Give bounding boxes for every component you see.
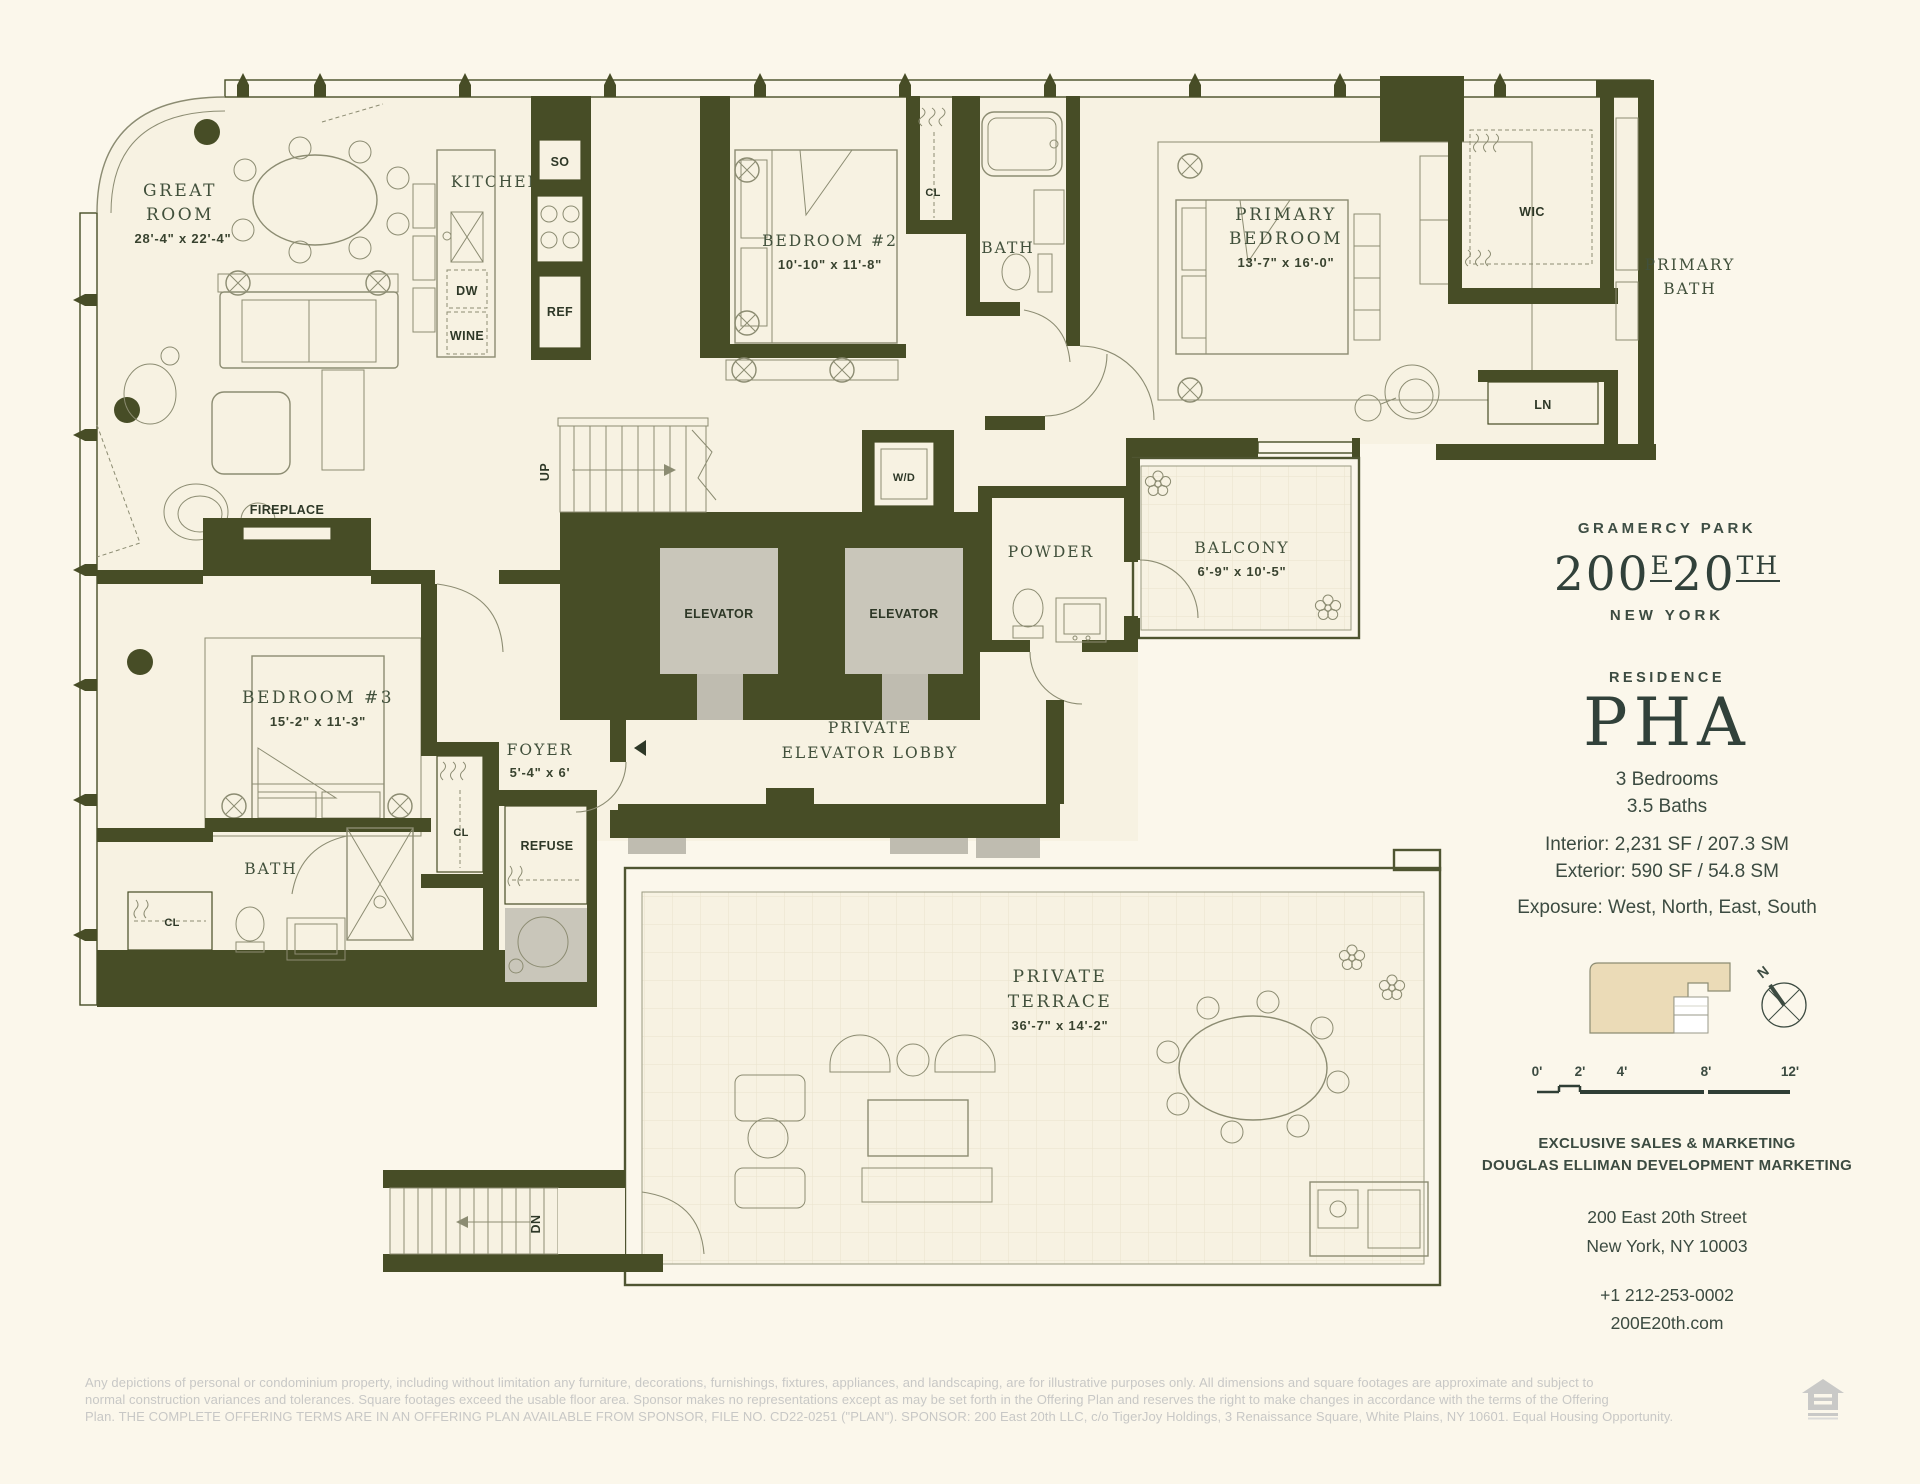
baths-count: 3.5 Baths	[1452, 794, 1882, 821]
logo-20: 20	[1672, 547, 1736, 602]
so-label: SO	[551, 155, 570, 169]
logo-e: E	[1650, 552, 1672, 582]
cl-label-1: CL	[925, 187, 940, 199]
balcony-dims: 6'-9" x 10'-5"	[1198, 564, 1287, 579]
powder-label: POWDER	[1008, 543, 1094, 561]
compass-north-label: N	[1754, 963, 1772, 982]
foyer-dims: 5'-4" x 6'	[510, 765, 571, 780]
address-line-1: 200 East 20th Street	[1452, 1203, 1882, 1232]
great-room-label-2: ROOM	[146, 205, 214, 225]
primary-bath-label-2: BATH	[1663, 280, 1717, 298]
range	[537, 196, 583, 262]
scale-bar: 0' 2' 4' 8' 12'	[1452, 1062, 1882, 1111]
elevator-label-1: ELEVATOR	[684, 607, 753, 621]
lobby-label-2: ELEVATOR LOBBY	[782, 744, 959, 762]
website: 200E20th.com	[1452, 1309, 1882, 1337]
kitchen-label: KITCHEN	[451, 173, 543, 191]
bedroom2-label: BEDROOM #2	[762, 232, 898, 250]
great-room-label-1: GREAT	[143, 181, 217, 201]
lobby-label-1: PRIVATE	[828, 719, 912, 737]
refuse-label: REFUSE	[520, 839, 573, 853]
scale-tick-12: 12'	[1781, 1064, 1799, 1079]
refuse-room: REFUSE	[499, 790, 597, 982]
address-line-2: New York, NY 10003	[1452, 1232, 1882, 1261]
bath2-label: BATH	[981, 239, 1035, 257]
foyer-label: FOYER	[507, 741, 574, 759]
private-terrace: PRIVATE TERRACE 36'-7" x 14'-2"	[625, 850, 1440, 1285]
closet-bath3: CL	[128, 892, 212, 950]
brand-city: NEW YORK	[1452, 607, 1882, 624]
dn-label: DN	[529, 1215, 543, 1234]
marketing-line-1: EXCLUSIVE SALES & MARKETING	[1452, 1133, 1882, 1155]
residence-name: PHA	[1452, 688, 1882, 757]
equal-housing-logo	[1800, 1376, 1846, 1427]
exterior-area: Exterior: 590 SF / 54.8 SM	[1452, 859, 1882, 886]
disclaimer: Any depictions of personal or condominiu…	[85, 1374, 1785, 1425]
interior-area: Interior: 2,231 SF / 207.3 SM	[1452, 832, 1882, 859]
terrace-label-1: PRIVATE	[1013, 967, 1108, 987]
bedroom3-dims: 15'-2" x 11'-3"	[270, 714, 366, 729]
bath3-label: BATH	[244, 860, 298, 878]
brand-logo: 200E20TH	[1452, 551, 1882, 598]
logo-200: 200	[1554, 547, 1650, 602]
disclaimer-line-2: normal construction variances and tolera…	[85, 1391, 1785, 1408]
scale-tick-0: 0'	[1532, 1064, 1543, 1079]
balcony-label: BALCONY	[1194, 539, 1289, 557]
dw-label: DW	[456, 284, 478, 298]
title-block: GRAMERCY PARK 200E20TH NEW YORK RESIDENC…	[1452, 520, 1882, 1337]
bedrooms-count: 3 Bedrooms	[1452, 767, 1882, 794]
washer-dryer: W/D	[862, 430, 954, 516]
primary-bedroom-label-2: BEDROOM	[1229, 229, 1343, 249]
disclaimer-line-1: Any depictions of personal or condominiu…	[85, 1374, 1785, 1391]
brand-location: GRAMERCY PARK	[1452, 520, 1882, 537]
disclaimer-line-3: Plan. THE COMPLETE OFFERING TERMS ARE IN…	[85, 1408, 1785, 1425]
primary-bath-label-1: PRIMARY	[1645, 256, 1736, 274]
ref-label: REF	[547, 305, 573, 319]
terrace-dims: 36'-7" x 14'-2"	[1011, 1018, 1108, 1033]
wine-label: WINE	[450, 329, 484, 343]
cl-label-2: CL	[453, 827, 468, 839]
marketing-line-2: DOUGLAS ELLIMAN DEVELOPMENT MARKETING	[1452, 1155, 1882, 1177]
bedroom3-label: BEDROOM #3	[242, 688, 394, 708]
compass: N	[1754, 963, 1806, 1027]
scale-tick-8: 8'	[1701, 1064, 1712, 1079]
phone-number: +1 212-253-0002	[1452, 1281, 1882, 1309]
elevator-label-2: ELEVATOR	[869, 607, 938, 621]
scale-tick-4: 4'	[1617, 1064, 1628, 1079]
building-footprint	[1590, 963, 1730, 1033]
dumbwaiter	[505, 908, 587, 982]
primary-bedroom-dims: 13'-7" x 16'-0"	[1237, 255, 1334, 270]
up-label: UP	[538, 463, 552, 481]
great-room-dims: 28'-4" x 22'-4"	[134, 231, 231, 246]
primary-bedroom-label-1: PRIMARY	[1235, 205, 1337, 225]
terrace-label-2: TERRACE	[1008, 992, 1113, 1012]
cl-label-3: CL	[164, 917, 179, 929]
scale-tick-2: 2'	[1575, 1064, 1586, 1079]
fireplace-label: FIREPLACE	[250, 503, 324, 517]
balcony: BALCONY 6'-9" x 10'-5"	[1126, 438, 1360, 638]
wd-label: W/D	[893, 472, 915, 484]
logo-th: TH	[1736, 552, 1780, 582]
floorplan-sheet: GREAT ROOM 28'-4" x 22'-4" KIT	[0, 0, 1920, 1484]
exposure: Exposure: West, North, East, South	[1452, 897, 1882, 919]
wic-label: WIC	[1519, 205, 1545, 219]
bedroom2-dims: 10'-10" x 11'-8"	[778, 257, 882, 272]
key-plan: N	[1452, 957, 1882, 1058]
ln-label: LN	[1534, 398, 1551, 412]
